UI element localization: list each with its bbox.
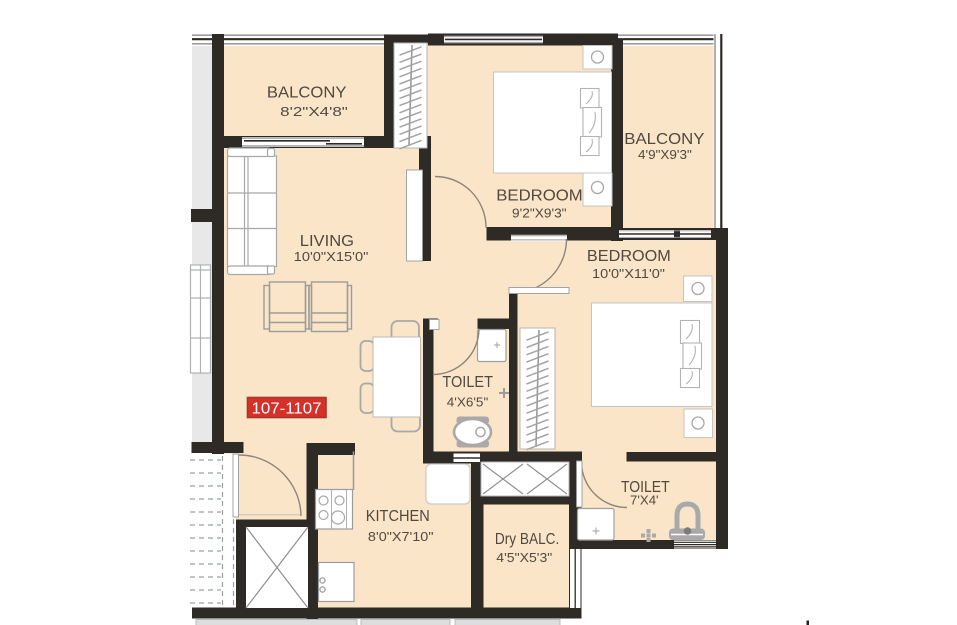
svg-text:8'0"X7'10": 8'0"X7'10": [368, 529, 434, 544]
svg-text:KITCHEN: KITCHEN: [366, 508, 430, 525]
svg-text:107-1107: 107-1107: [252, 401, 322, 418]
svg-text:8'2"X4'8": 8'2"X4'8": [280, 104, 348, 119]
svg-text:4'9"X9'3": 4'9"X9'3": [638, 147, 692, 162]
svg-text:Dry BALC.: Dry BALC.: [495, 531, 559, 548]
svg-text:BALCONY: BALCONY: [267, 85, 347, 102]
svg-text:BEDROOM: BEDROOM: [496, 188, 583, 205]
svg-text:4'X6'5": 4'X6'5": [447, 395, 489, 410]
svg-text:BALCONY: BALCONY: [624, 131, 705, 148]
svg-text:LIVING: LIVING: [300, 233, 354, 250]
svg-text:TOILET: TOILET: [442, 374, 493, 391]
svg-text:10'0"X15'0": 10'0"X15'0": [294, 249, 369, 264]
svg-text:4'5"X5'3": 4'5"X5'3": [496, 550, 552, 565]
svg-text:9'2"X9'3": 9'2"X9'3": [512, 206, 567, 221]
svg-text:BEDROOM: BEDROOM: [587, 248, 671, 265]
svg-text:7'X4': 7'X4': [630, 493, 659, 508]
svg-text:10'0"X11'0": 10'0"X11'0": [592, 266, 665, 281]
